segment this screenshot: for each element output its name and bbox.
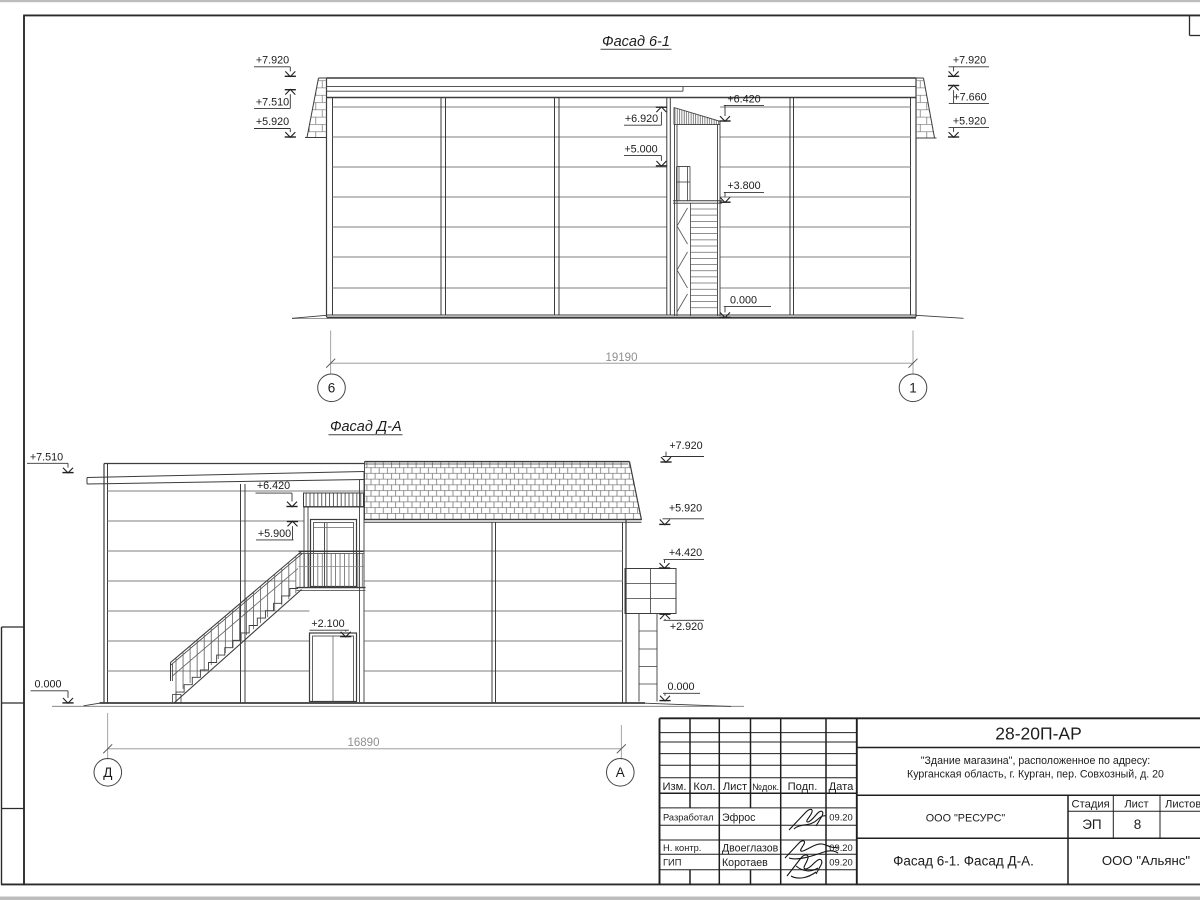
svg-text:Д: Д [103,765,112,780]
svg-text:Листов: Листов [1165,799,1200,811]
svg-text:"Здание магазина", расположенн: "Здание магазина", расположенное по адре… [921,755,1151,767]
svg-text:Изм.: Изм. [663,781,687,793]
svg-text:Эфрос: Эфрос [722,812,756,824]
svg-text:№док.: №док. [752,782,779,792]
svg-text:09.20: 09.20 [829,857,852,868]
svg-text:+5.920: +5.920 [669,502,702,514]
svg-text:+7.920: +7.920 [953,55,986,67]
svg-text:ООО "Альянс": ООО "Альянс" [1102,853,1190,868]
svg-text:0.000: 0.000 [34,678,61,690]
svg-text:Двоеглазов: Двоеглазов [722,843,779,855]
svg-text:ООО "РЕСУРС": ООО "РЕСУРС" [926,813,1006,825]
svg-text:Фасад Д-А: Фасад Д-А [330,419,402,435]
svg-text:0.000: 0.000 [667,681,694,693]
svg-text:16890: 16890 [348,737,380,749]
svg-text:+7.510: +7.510 [256,96,289,108]
svg-text:Стадия: Стадия [1072,799,1110,811]
svg-text:19190: 19190 [606,352,638,364]
svg-text:+3.800: +3.800 [727,180,760,192]
svg-text:Кол.: Кол. [693,781,715,793]
svg-text:+7.920: +7.920 [669,440,702,452]
svg-text:ГИП: ГИП [663,858,681,868]
svg-text:+6.920: +6.920 [625,113,658,125]
svg-text:0.000: 0.000 [730,294,757,306]
svg-text:+2.100: +2.100 [311,618,344,630]
svg-text:+5.920: +5.920 [256,116,289,128]
svg-text:Лист: Лист [1124,799,1148,811]
svg-text:+6.420: +6.420 [257,480,290,492]
svg-text:Разработал: Разработал [663,812,714,822]
svg-text:Фасад 6-1. Фасад Д-А.: Фасад 6-1. Фасад Д-А. [893,854,1034,869]
svg-text:+7.660: +7.660 [953,91,986,103]
svg-text:09.20: 09.20 [829,811,852,822]
svg-text:+7.510: +7.510 [30,451,63,463]
svg-text:+5.920: +5.920 [953,116,986,128]
svg-text:Подп.: Подп. [788,781,818,793]
svg-text:+4.420: +4.420 [669,547,702,559]
svg-text:Фасад 6-1: Фасад 6-1 [602,34,670,50]
svg-text:+7.920: +7.920 [256,55,289,67]
svg-text:8: 8 [1134,817,1142,832]
svg-text:28-20П-АР: 28-20П-АР [995,724,1082,744]
svg-text:+2.920: +2.920 [670,621,703,633]
svg-text:1: 1 [909,381,917,396]
svg-text:+5.900: +5.900 [258,528,291,540]
svg-text:Коротаев: Коротаев [722,857,768,869]
svg-text:+6.420: +6.420 [727,93,760,105]
svg-text:Лист: Лист [723,781,747,793]
svg-text:+5.000: +5.000 [624,144,657,156]
svg-text:Дата: Дата [829,781,855,793]
svg-text:ЭП: ЭП [1082,817,1101,832]
svg-text:6: 6 [328,381,336,396]
svg-text:А: А [616,765,625,780]
svg-text:Н. контр.: Н. контр. [663,843,701,853]
svg-text:Курганская область, г. Курган,: Курганская область, г. Курган, пер. Совх… [907,769,1164,781]
